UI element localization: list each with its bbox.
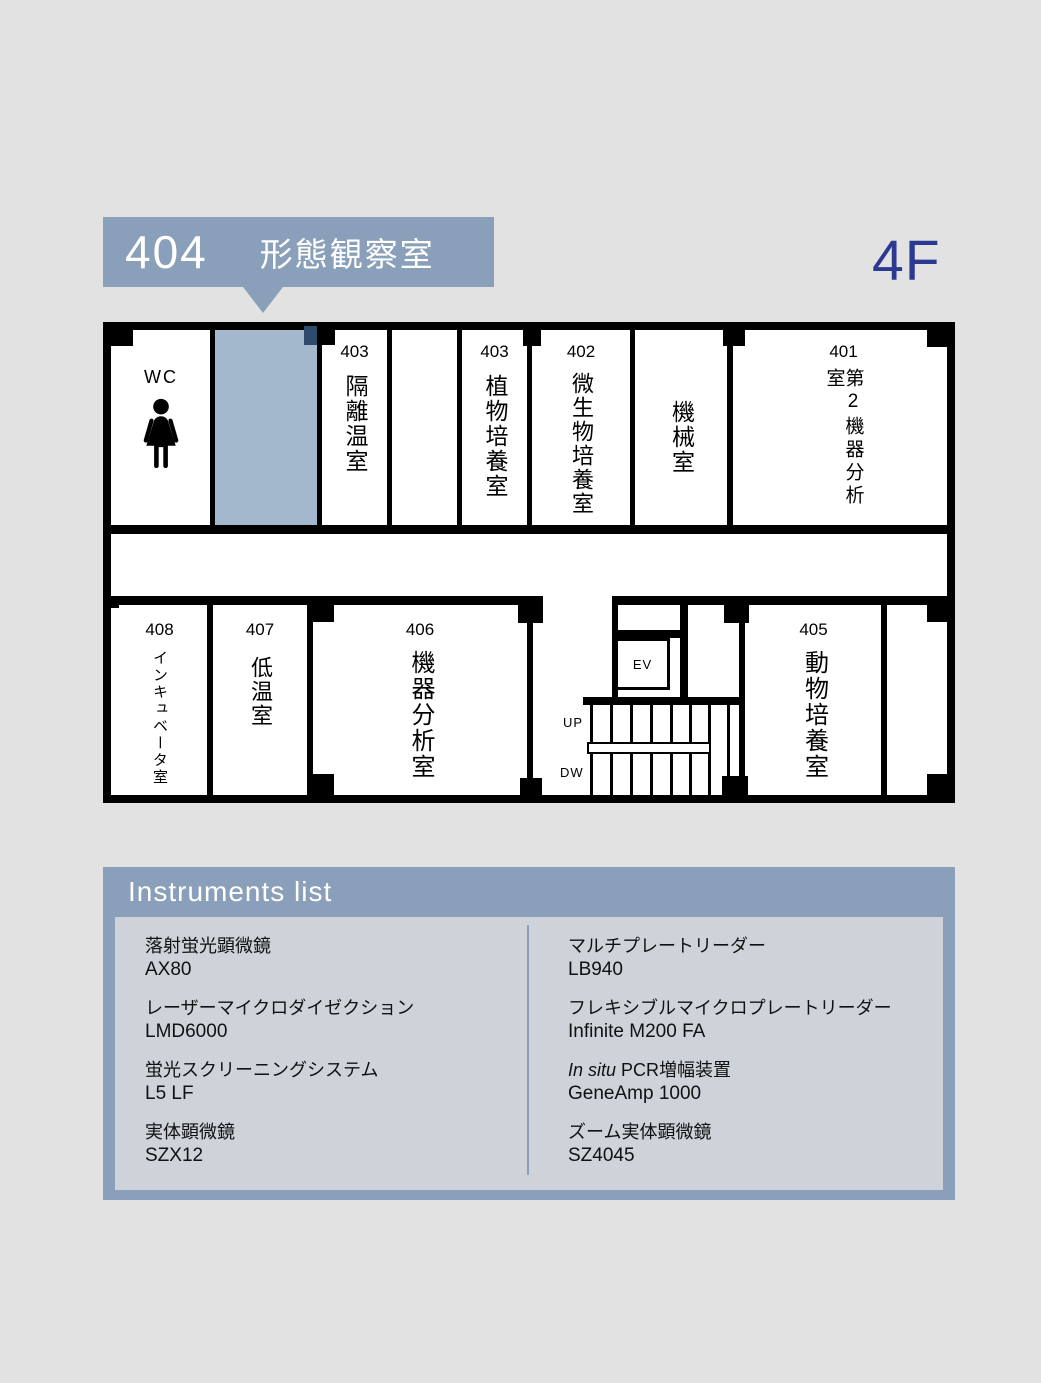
room-404-highlight[interactable] bbox=[215, 329, 317, 525]
wall bbox=[680, 605, 688, 697]
instrument-item: レーザーマイクロダイゼクション LMD6000 bbox=[145, 996, 414, 1044]
wall bbox=[583, 697, 745, 705]
room-number: 407 bbox=[246, 620, 274, 640]
wall bbox=[103, 322, 111, 803]
instrument-model: Infinite M200 FA bbox=[568, 1020, 892, 1044]
wall bbox=[727, 329, 733, 525]
room-wc: WC bbox=[112, 329, 210, 525]
room-403-isolation[interactable]: 403 隔離温室 bbox=[322, 329, 387, 525]
instrument-model: LMD6000 bbox=[145, 1020, 414, 1044]
instruments-title: Instruments list bbox=[128, 876, 332, 908]
column-divider bbox=[527, 925, 529, 1175]
room-name: 機器分析室 bbox=[408, 650, 432, 780]
instrument-item: 蛍光スクリーニングシステム L5 LF bbox=[145, 1058, 414, 1106]
room-name: 機械室 bbox=[670, 400, 693, 475]
instrument-name: In situ PCR増幅装置 bbox=[568, 1058, 892, 1082]
callout-room-name: 形態観察室 bbox=[260, 228, 435, 276]
room-405[interactable]: 405 動物培養室 bbox=[746, 605, 881, 795]
wall bbox=[527, 605, 533, 795]
room-number: 408 bbox=[145, 620, 173, 640]
instruments-column-left: 落射蛍光顕微鏡 AX80 レーザーマイクロダイゼクション LMD6000 蛍光ス… bbox=[145, 934, 414, 1168]
instrument-name: レーザーマイクロダイゼクション bbox=[145, 996, 414, 1020]
woman-icon bbox=[138, 398, 184, 476]
instruments-column-right: マルチプレートリーダー LB940 フレキシブルマイクロプレートリーダー Inf… bbox=[568, 934, 892, 1168]
post bbox=[927, 774, 951, 795]
instrument-name: フレキシブルマイクロプレートリーダー bbox=[568, 996, 892, 1020]
wall bbox=[210, 329, 215, 525]
room-name: 隔離温室 bbox=[343, 374, 366, 474]
instrument-item: マルチプレートリーダー LB940 bbox=[568, 934, 892, 982]
elevator: EV bbox=[615, 638, 670, 690]
wall bbox=[612, 596, 947, 605]
room-number: 403 bbox=[480, 342, 508, 362]
instrument-name: マルチプレートリーダー bbox=[568, 934, 892, 958]
instrument-item: 落射蛍光顕微鏡 AX80 bbox=[145, 934, 414, 982]
room-407[interactable]: 407 低温室 bbox=[213, 605, 307, 795]
instrument-model: LB940 bbox=[568, 958, 892, 982]
room-name: インキュベータ室 bbox=[152, 650, 167, 786]
stairs-down-label: DW bbox=[560, 765, 584, 780]
room-number: 406 bbox=[406, 620, 434, 640]
room-name: 植物培養室 bbox=[483, 374, 506, 499]
room-number: 402 bbox=[567, 342, 595, 362]
wall bbox=[111, 525, 947, 534]
room-number: 401 bbox=[829, 342, 857, 362]
wall bbox=[881, 605, 887, 795]
instrument-model: L5 LF bbox=[145, 1082, 414, 1106]
room-name: 低温室 bbox=[249, 656, 271, 728]
instrument-item: 実体顕微鏡 SZX12 bbox=[145, 1120, 414, 1168]
room-403-plant[interactable]: 403 植物培養室 bbox=[462, 329, 527, 525]
room-name: 第2機器分析室 bbox=[825, 368, 863, 525]
room-number: 405 bbox=[799, 620, 827, 640]
post bbox=[304, 326, 317, 345]
wall bbox=[947, 322, 955, 803]
page: 404 形態観察室 4F bbox=[0, 0, 1041, 1383]
instrument-model: SZX12 bbox=[145, 1144, 414, 1168]
callout-pointer-icon bbox=[243, 287, 283, 313]
stair-landing bbox=[587, 742, 711, 754]
instrument-item: In situ PCR増幅装置 GeneAmp 1000 bbox=[568, 1058, 892, 1106]
room-408[interactable]: 408 インキュベータ室 bbox=[112, 605, 207, 795]
instrument-name: ズーム実体顕微鏡 bbox=[568, 1120, 892, 1144]
post bbox=[722, 776, 748, 795]
instrument-name: 落射蛍光顕微鏡 bbox=[145, 934, 414, 958]
instrument-model: SZ4045 bbox=[568, 1144, 892, 1168]
callout-room-number: 404 bbox=[125, 225, 208, 279]
room-name: 微生物培養室 bbox=[570, 372, 592, 516]
room-402[interactable]: 402 微生物培養室 bbox=[532, 329, 630, 525]
room-401[interactable]: 401 第2機器分析室 bbox=[740, 329, 947, 525]
room-name: 動物培養室 bbox=[802, 650, 826, 780]
instrument-name: 蛍光スクリーニングシステム bbox=[145, 1058, 414, 1082]
instruments-list: 落射蛍光顕微鏡 AX80 レーザーマイクロダイゼクション LMD6000 蛍光ス… bbox=[115, 917, 943, 1190]
instruments-panel: Instruments list 落射蛍光顕微鏡 AX80 レーザーマイクロダイ… bbox=[103, 867, 955, 1200]
floor-plan: WC 403 隔離温室 403 植物培養室 402 微生物培養室 機械室 401 bbox=[103, 322, 955, 803]
instrument-model: AX80 bbox=[145, 958, 414, 982]
instrument-item: フレキシブルマイクロプレートリーダー Infinite M200 FA bbox=[568, 996, 892, 1044]
post bbox=[927, 598, 951, 622]
room-callout: 404 形態観察室 bbox=[103, 217, 494, 287]
wall bbox=[612, 630, 688, 638]
wc-label: WC bbox=[144, 367, 178, 388]
room-machine[interactable]: 機械室 bbox=[635, 329, 727, 525]
stairs-up-label: UP bbox=[563, 715, 583, 730]
elevator-label: EV bbox=[633, 657, 652, 672]
stair-tread bbox=[727, 705, 730, 795]
wall bbox=[103, 795, 955, 803]
floor-label: 4F bbox=[872, 228, 941, 294]
wall bbox=[387, 329, 392, 525]
instrument-name: 実体顕微鏡 bbox=[145, 1120, 414, 1144]
instrument-item: ズーム実体顕微鏡 SZ4045 bbox=[568, 1120, 892, 1168]
instrument-model: GeneAmp 1000 bbox=[568, 1082, 892, 1106]
room-number: 403 bbox=[340, 342, 368, 362]
room-406[interactable]: 406 機器分析室 bbox=[313, 605, 527, 795]
